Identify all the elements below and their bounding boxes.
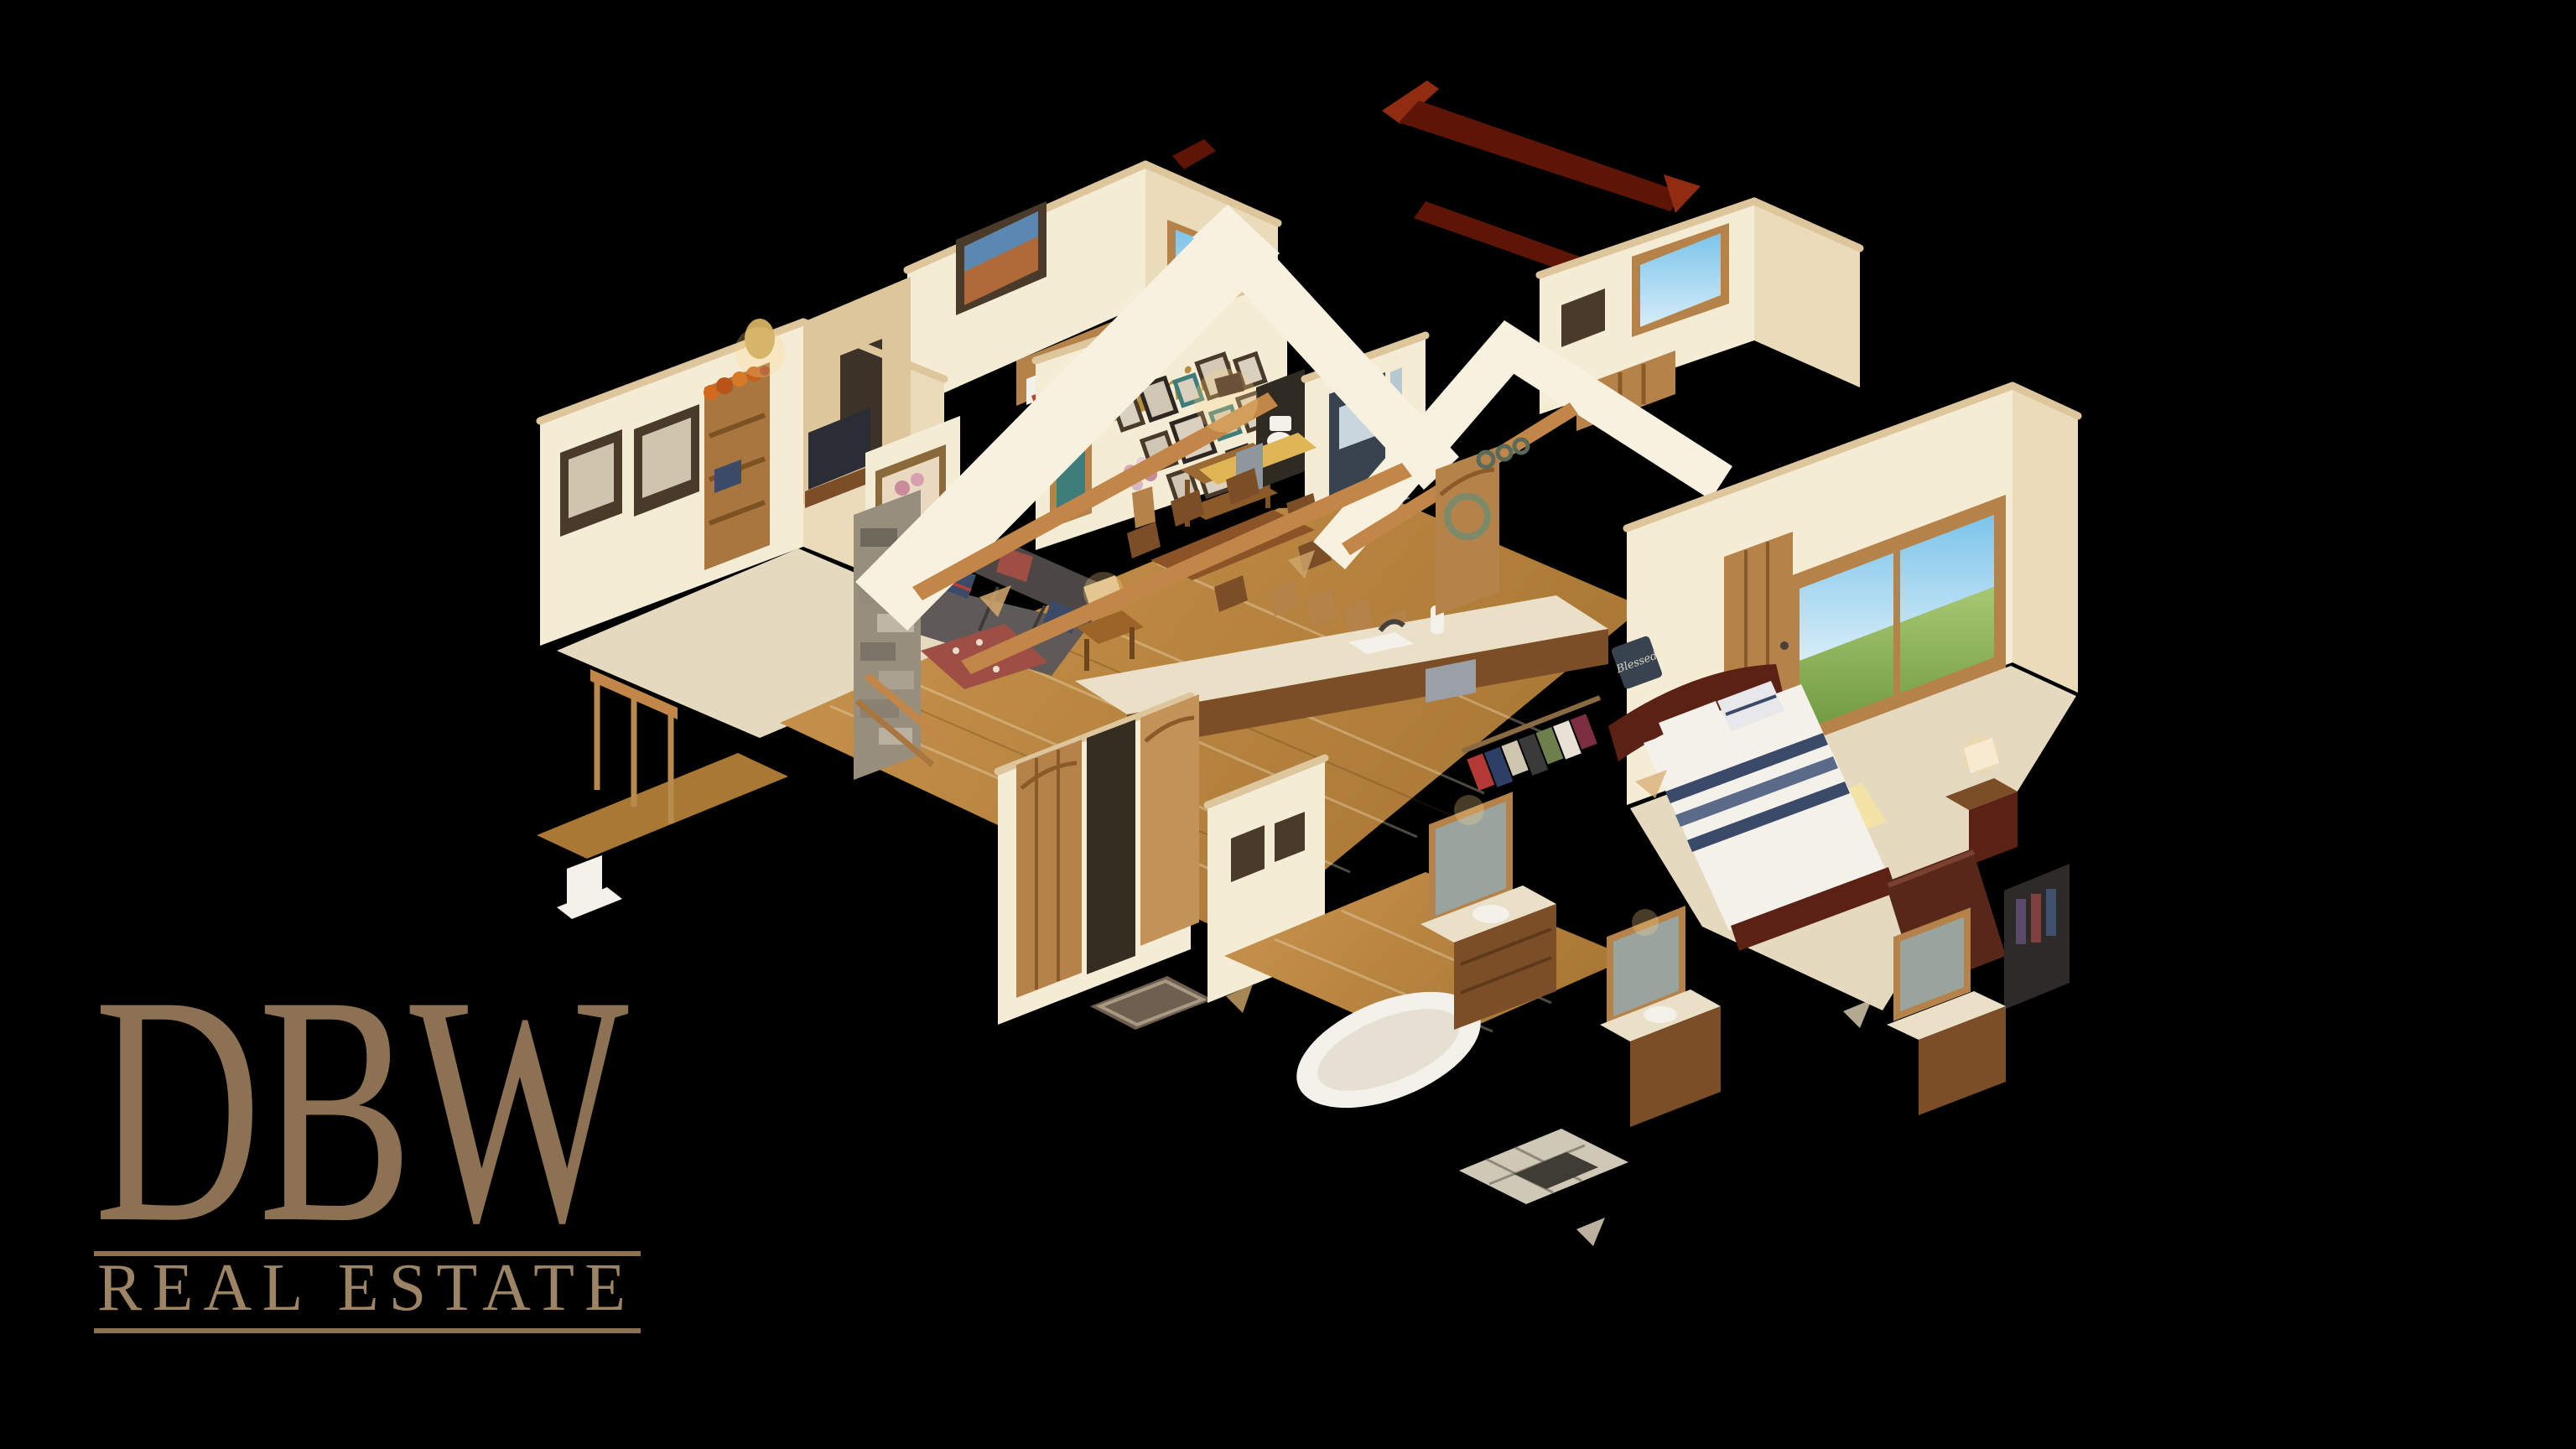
ottoman-dot — [993, 666, 1000, 673]
lamp-glow — [1962, 736, 1999, 773]
toilet-tank — [1270, 416, 1291, 431]
blossom — [895, 480, 910, 496]
wood-landing — [537, 753, 788, 859]
wall-side — [2012, 386, 2078, 693]
pendant-glow — [735, 327, 785, 377]
open-door — [1140, 694, 1199, 946]
door-knob — [1780, 641, 1789, 650]
clothes-item — [2016, 899, 2026, 944]
closet-opening — [1087, 719, 1135, 974]
red-roof-strip — [1399, 101, 1684, 211]
ottoman-dot — [976, 639, 983, 646]
sconce-glow — [1632, 909, 1659, 936]
ottoman-dot — [953, 647, 959, 654]
vanity-sink — [1472, 905, 1509, 923]
stone-block — [860, 642, 896, 661]
logo-monogram: DBW — [94, 946, 626, 1273]
fall-garland — [732, 371, 747, 387]
vanity2-sink — [1644, 1006, 1677, 1023]
logo-rule-bottom — [94, 1328, 641, 1333]
wall-side — [1754, 201, 1860, 387]
blossom — [911, 473, 924, 486]
clothes-item — [2046, 889, 2056, 936]
canvas: { "brand": { "monogram": "DBW", "wordmar… — [0, 0, 2576, 1449]
barn-door — [1016, 740, 1082, 998]
floral-vase — [1132, 486, 1156, 528]
stone-block — [860, 528, 897, 547]
fall-garland — [716, 377, 733, 394]
clothes-item — [2031, 894, 2041, 943]
mesh-fragment — [1843, 1000, 1872, 1028]
red-roof-tip-left — [1172, 139, 1216, 169]
mesh-fragment — [1576, 1218, 1605, 1246]
logo-wordmark: REAL ESTATE — [97, 1254, 636, 1322]
sconce-glow — [1454, 795, 1484, 825]
dining-chair — [1127, 522, 1161, 558]
